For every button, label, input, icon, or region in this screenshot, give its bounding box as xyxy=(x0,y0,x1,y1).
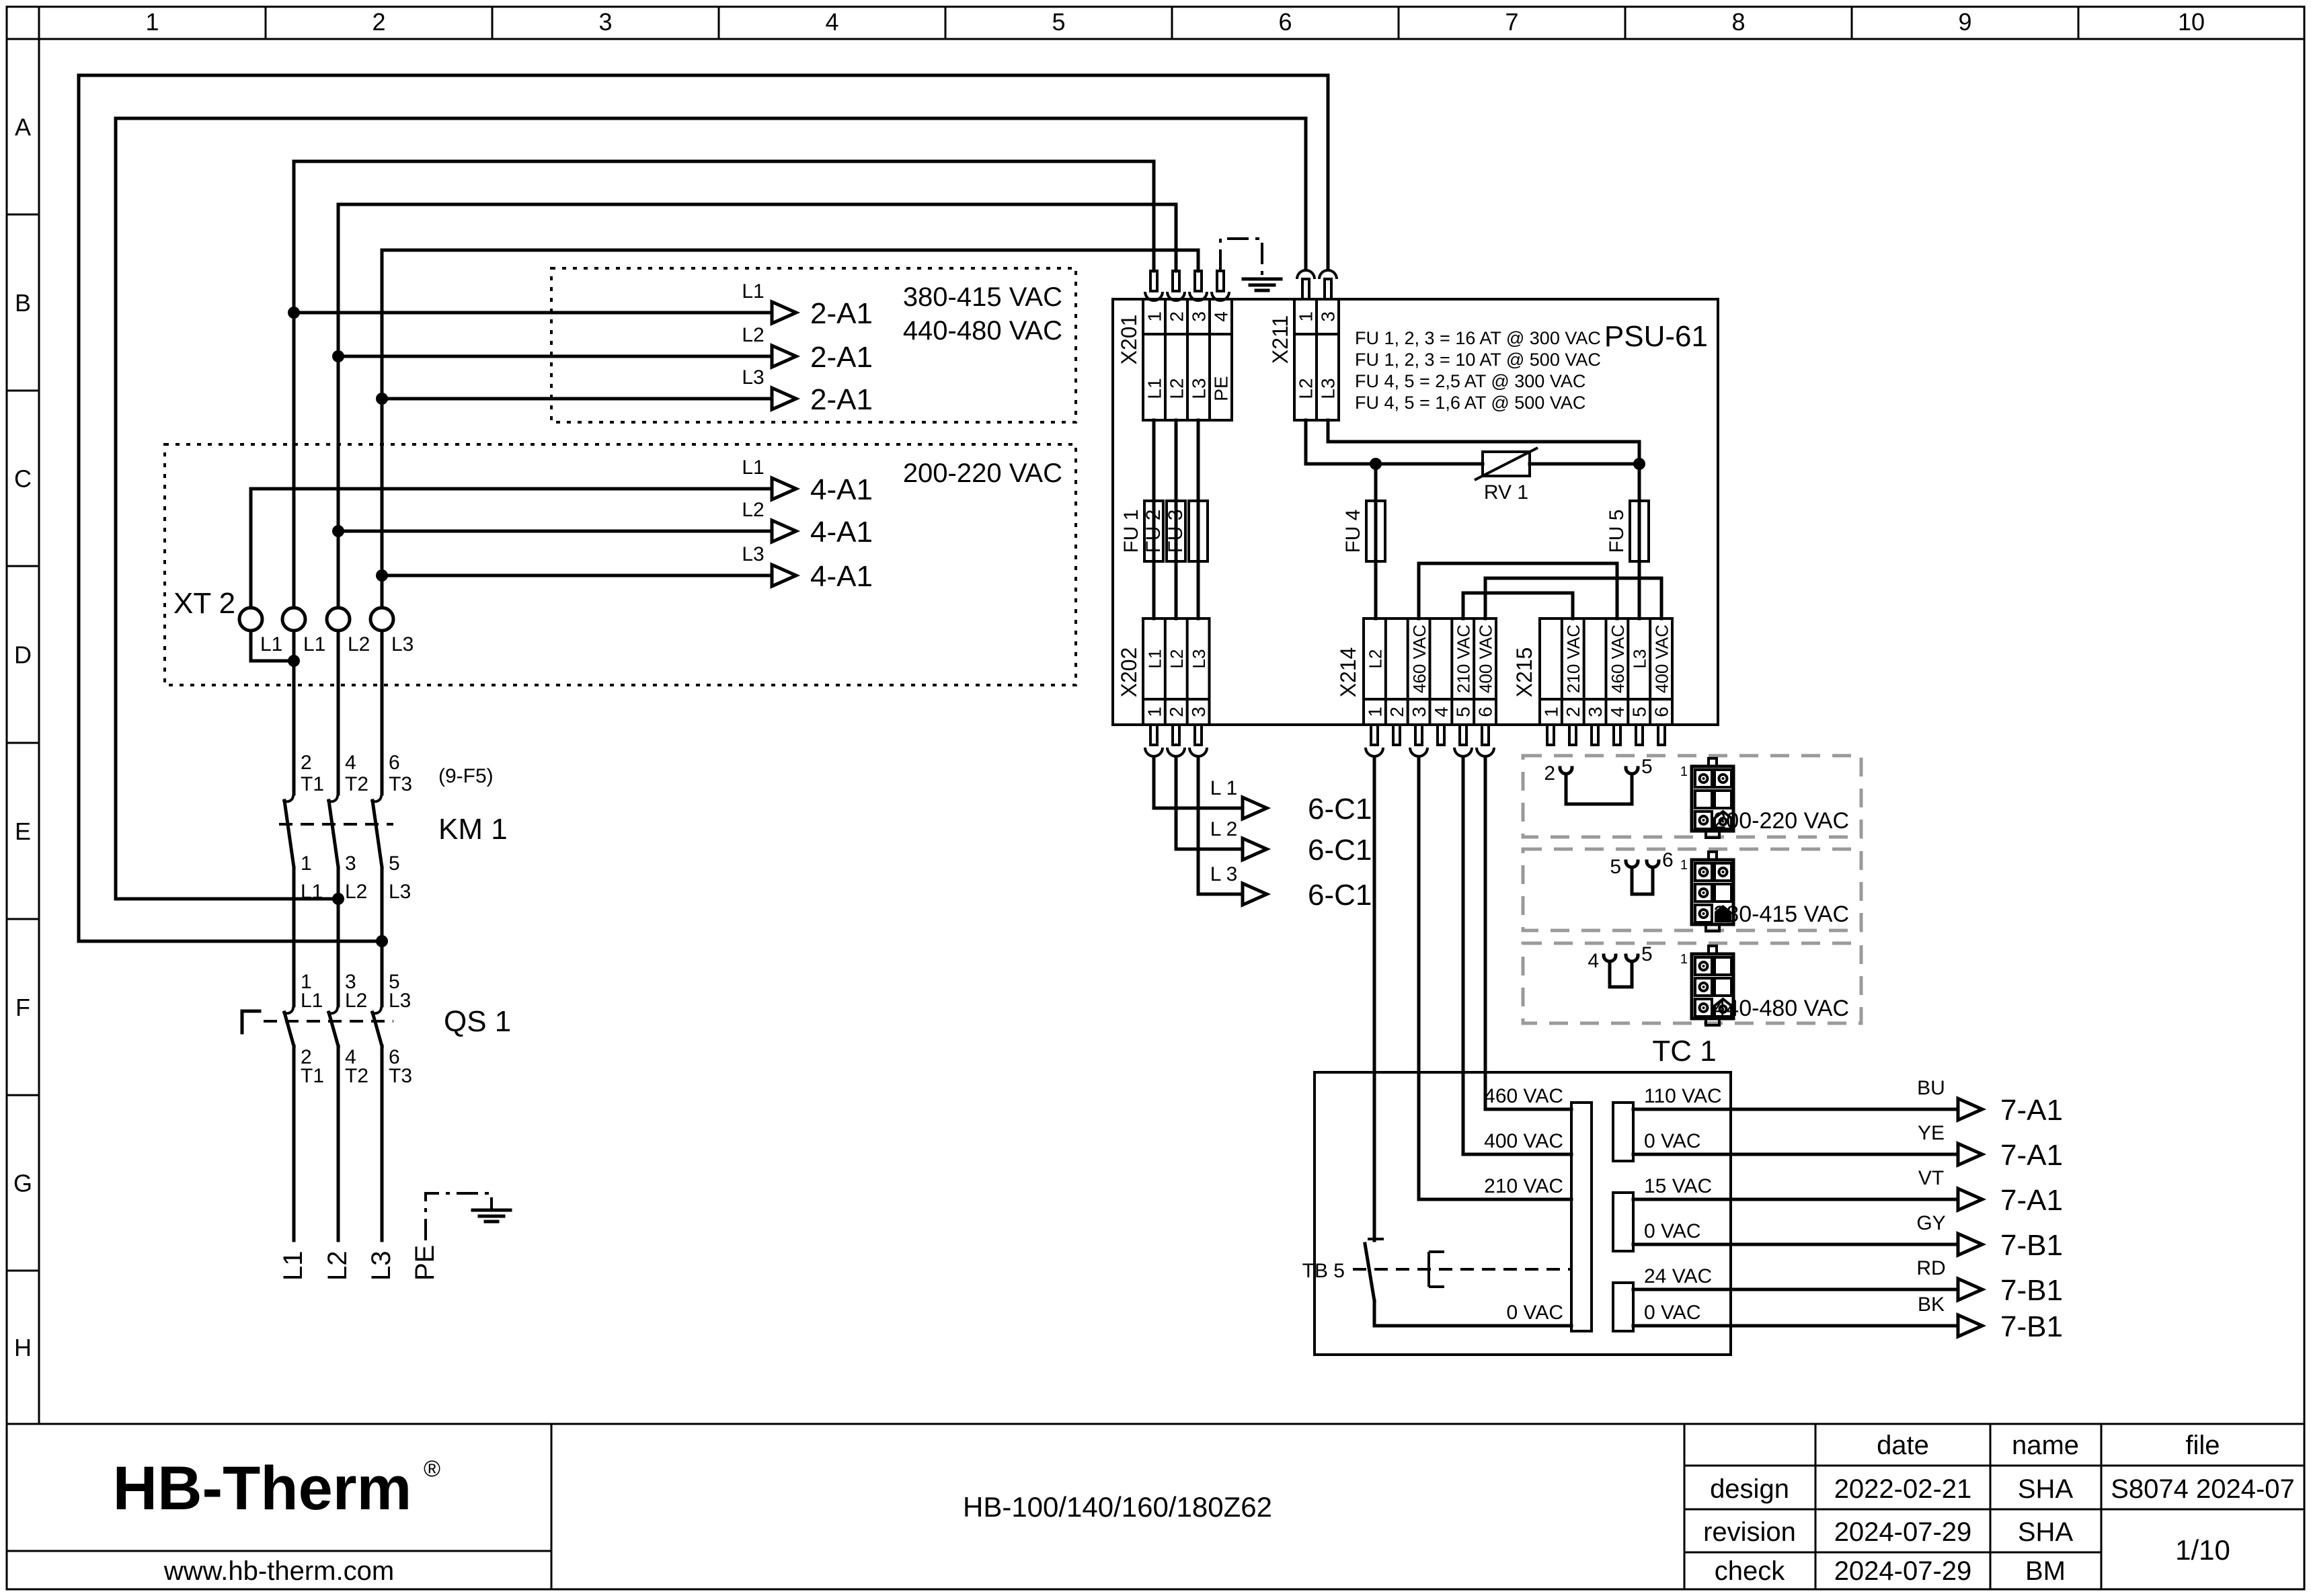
grid-row-label: G xyxy=(13,1170,32,1197)
plug-pin-icon xyxy=(1302,279,1309,299)
signal-arrow-icon xyxy=(1243,883,1267,905)
switch-blade xyxy=(329,801,338,867)
switch-blade xyxy=(329,1012,338,1046)
junction-dot xyxy=(376,935,388,947)
label-title_block-rows-2-name: BM xyxy=(2025,1556,2066,1586)
pin-number: 1 xyxy=(1296,311,1317,322)
label-km1-bot_num-0: 1 xyxy=(301,852,312,875)
plug-pin-icon xyxy=(1460,725,1466,745)
mains-phase-label: L2 xyxy=(323,1251,352,1281)
pin-label: 460 VAC xyxy=(1409,625,1429,693)
label-psu-x214-label: X214 xyxy=(1336,647,1360,698)
plug-pin-icon xyxy=(1569,725,1576,745)
label-feeds_2a1-items-0-target: 2-A1 xyxy=(810,297,873,330)
signal-arrow-icon xyxy=(772,346,796,367)
pin-label: 460 VAC xyxy=(1608,625,1628,693)
junction-dot xyxy=(332,525,344,537)
pin-label: L1 xyxy=(1144,378,1165,399)
grid-col-label: 5 xyxy=(1052,8,1065,36)
label-psu-x201-label: X201 xyxy=(1117,315,1141,365)
label-psu-x215-label: X215 xyxy=(1512,647,1536,698)
pin-number: 4 xyxy=(1431,707,1452,717)
label-xt2-terminals-0: L1 xyxy=(260,633,282,655)
wire xyxy=(1566,774,1632,804)
plug-pin-icon xyxy=(1195,725,1202,745)
pin-number: 5 xyxy=(1453,707,1474,717)
pin-number: 2 xyxy=(1167,311,1187,322)
label-out_7-items-3-color: GY xyxy=(1916,1212,1945,1234)
signal-arrow-icon xyxy=(1958,1234,1982,1255)
label-tc1-secondary-1: 0 VAC xyxy=(1644,1130,1700,1152)
label-out_6c1-items-0-phase: L 1 xyxy=(1210,777,1238,799)
plug-cell xyxy=(1715,791,1731,808)
label-out_7-items-5-target: 7-B1 xyxy=(2000,1310,2063,1343)
signal-arrow-icon xyxy=(1243,797,1267,819)
label-xt2-terminals-1: L1 xyxy=(303,633,325,655)
switch-blade xyxy=(1365,1244,1374,1301)
label-out_7-items-2-color: VT xyxy=(1918,1167,1944,1189)
label-voltage_options-1-jumper_pins-1: 6 xyxy=(1662,849,1674,871)
label-voltage_options-2-jumper_pins-0: 4 xyxy=(1588,950,1599,972)
plug-cell xyxy=(1702,965,1705,967)
wiring-diagram-canvas: 12345678910ABCDEFGH380-415 VAC440-480 VA… xyxy=(0,0,2311,1596)
pin-label: 210 VAC xyxy=(1563,625,1583,693)
plug-socket-icon xyxy=(1189,748,1207,756)
terminal-circle xyxy=(282,608,305,631)
wire xyxy=(1610,961,1632,987)
label-feeds_2a1-items-1-phase: L2 xyxy=(742,324,764,346)
label-feeds_2a1-items-2-target: 2-A1 xyxy=(810,383,873,416)
label-feeds_4a1-items-2-phase: L3 xyxy=(742,543,764,565)
label-voltage_options-1-pin_label: 1 xyxy=(1680,858,1688,873)
pin-label: L2 xyxy=(1365,649,1385,669)
core-bar xyxy=(1571,1103,1592,1331)
signal-arrow-icon xyxy=(772,478,796,500)
grid-row-label: H xyxy=(14,1334,32,1361)
label-tc1-secondary-4: 24 VAC xyxy=(1644,1265,1712,1287)
label-tc1-label: TC 1 xyxy=(1652,1035,1716,1068)
grid-col-label: 3 xyxy=(598,8,612,36)
pin-number: 2 xyxy=(1166,707,1187,717)
connector-plug-icon xyxy=(1709,852,1717,860)
plug-cell xyxy=(1722,1008,1725,1010)
grid-row-label: D xyxy=(14,641,32,669)
label-tc1-secondary-3: 0 VAC xyxy=(1644,1220,1700,1242)
label-out_7-items-3-target: 7-B1 xyxy=(2000,1229,2063,1262)
label-km1-ref: (9-F5) xyxy=(438,765,494,787)
label-km1-top_num-1: 4 xyxy=(345,752,356,774)
wire xyxy=(294,161,1154,608)
label-feeds_4a1-items-0-target: 4-A1 xyxy=(810,473,873,506)
plug-cell xyxy=(1702,912,1705,915)
pin-number: 1 xyxy=(1364,707,1385,717)
grid-col-label: 9 xyxy=(1958,8,1971,36)
label-out_7-items-0-target: 7-A1 xyxy=(2000,1094,2063,1127)
core-bar xyxy=(1613,1193,1633,1251)
signal-arrow-icon xyxy=(772,565,796,586)
wire xyxy=(1419,563,1617,619)
label-voltage_options-0-jumper_pins-1: 5 xyxy=(1641,756,1653,778)
plug-socket-icon xyxy=(1145,748,1163,756)
wire xyxy=(1632,867,1653,894)
label-title_block-rows-0-label: design xyxy=(1710,1474,1789,1504)
signal-arrow-icon xyxy=(1958,1189,1982,1210)
core-bar xyxy=(1613,1283,1633,1331)
label-qs1-bot_lbl-2: T3 xyxy=(389,1065,412,1087)
wire xyxy=(251,489,772,608)
label-xt2-label: XT 2 xyxy=(173,587,235,620)
label-tc1-secondary-5: 0 VAC xyxy=(1644,1302,1700,1324)
connector-plug-icon xyxy=(1709,946,1717,954)
plug-socket-icon xyxy=(1410,748,1427,756)
label-out_7-items-1-color: YE xyxy=(1918,1122,1945,1144)
plug-cell xyxy=(1702,986,1705,988)
junction-dot xyxy=(332,893,344,905)
label-psu-x211-label: X211 xyxy=(1268,315,1292,364)
pin-label: L3 xyxy=(1189,378,1210,399)
signal-arrow-icon xyxy=(772,388,796,409)
plug-cell xyxy=(1722,777,1725,780)
signal-arrow-icon xyxy=(1958,1099,1982,1120)
plug-cell xyxy=(1715,957,1731,975)
label-out_6c1-items-1-target: 6-C1 xyxy=(1308,834,1372,867)
label-psu-notes-0: FU 1, 2, 3 = 16 AT @ 300 VAC xyxy=(1355,328,1601,348)
plug-cell xyxy=(1695,791,1712,808)
model-label: HB-100/140/160/180Z62 xyxy=(963,1491,1272,1523)
plug-socket-icon xyxy=(1366,748,1383,756)
plug-pin-icon xyxy=(1393,725,1400,745)
pin-number: 3 xyxy=(1189,311,1210,322)
label-psu-fuses-4: FU 5 xyxy=(1606,509,1628,553)
mains-phase-label: L1 xyxy=(278,1251,308,1281)
label-title_block-headers-file: file xyxy=(2185,1431,2220,1460)
grid-col-label: 10 xyxy=(2178,8,2205,36)
label-feeds_2a1-items-0-phase: L1 xyxy=(742,280,764,303)
pin-number: 4 xyxy=(1607,707,1628,717)
plug-pin-icon xyxy=(1371,725,1378,745)
plug-cell xyxy=(1722,820,1725,823)
grid-col-label: 1 xyxy=(145,8,159,36)
plug-cell xyxy=(1722,871,1725,873)
plug-socket-icon xyxy=(1477,748,1494,756)
pin-label: L3 xyxy=(1189,649,1209,669)
pin-label: PE xyxy=(1211,376,1232,401)
plug-pin-icon xyxy=(1438,725,1444,745)
wire xyxy=(1485,757,1571,1109)
label-title_block-rows-2-label: check xyxy=(1715,1556,1785,1586)
plug-cell xyxy=(1702,891,1705,894)
label-tc1-secondary-0: 110 VAC xyxy=(1644,1085,1722,1107)
signal-arrow-icon xyxy=(1243,838,1267,860)
pin-number: 3 xyxy=(1585,707,1606,717)
pin-number: 2 xyxy=(1563,707,1583,717)
label-feeds_2a1-items-1-target: 2-A1 xyxy=(810,341,873,374)
label-qs1-top_lbl-2: L3 xyxy=(389,990,411,1012)
label-out_7-items-1-target: 7-A1 xyxy=(2000,1139,2063,1172)
plug-pin-icon xyxy=(1150,271,1157,291)
plug-pin-icon xyxy=(1592,725,1598,745)
label-km1-top_lbl-1: T2 xyxy=(345,773,368,795)
pin-number: 6 xyxy=(1475,707,1496,717)
grid-col-label: 2 xyxy=(372,8,385,36)
label-km1-top_num-2: 6 xyxy=(389,752,400,774)
switch-blade xyxy=(284,801,294,867)
label-title_block-page: 1/10 xyxy=(2175,1534,2230,1566)
grid-row-label: F xyxy=(15,994,30,1021)
wire xyxy=(1463,593,1573,619)
label-out_7-items-2-target: 7-A1 xyxy=(2000,1184,2063,1217)
label-title_block-rows-2-date: 2024-07-29 xyxy=(1834,1556,1972,1586)
label-psu-rv: RV 1 xyxy=(1484,481,1528,504)
terminal-circle xyxy=(327,608,350,631)
label-qs1-label: QS 1 xyxy=(444,1005,511,1038)
grid-col-label: 6 xyxy=(1278,8,1292,36)
label-km1-top_lbl-2: T3 xyxy=(389,773,412,795)
label-title_block-rows-1-name: SHA xyxy=(2018,1517,2074,1547)
connector-plug-icon xyxy=(1706,831,1719,838)
junction-dot xyxy=(288,307,300,319)
core-bar xyxy=(1613,1103,1633,1161)
plug-pin-icon xyxy=(1614,725,1620,745)
pin-number: 5 xyxy=(1629,707,1650,717)
plug-pin-icon xyxy=(1658,725,1665,745)
label-title_block-rows-0-date: 2022-02-21 xyxy=(1834,1474,1972,1504)
connector-plug-icon xyxy=(1709,758,1717,766)
label-title_block-headers-date: date xyxy=(1877,1431,1929,1460)
plug-pin-icon xyxy=(1482,725,1489,745)
schematic-sheet: 12345678910ABCDEFGH380-415 VAC440-480 VA… xyxy=(0,0,2311,1596)
label-km1-top_lbl-0: T1 xyxy=(301,773,324,795)
plug-pin-icon xyxy=(1547,725,1554,745)
connector-plug-icon xyxy=(1706,924,1719,931)
label-out_6c1-items-2-phase: L 3 xyxy=(1210,863,1238,885)
plug-cell xyxy=(1702,777,1705,780)
pin-label: L2 xyxy=(1167,378,1187,399)
label-out_7-items-5-color: BK xyxy=(1918,1293,1945,1316)
label-voltage_options-0-jumper_pins-0: 2 xyxy=(1544,762,1555,785)
pe-conductor xyxy=(1220,239,1262,278)
label-psu-fuses-3: FU 4 xyxy=(1342,509,1364,553)
label-km1-top_num-0: 2 xyxy=(301,752,312,774)
grid-col-label: 8 xyxy=(1731,8,1745,36)
label-tc1-primary-3: 0 VAC xyxy=(1507,1302,1563,1324)
pin-number: 1 xyxy=(1144,707,1165,717)
pin-label: L3 xyxy=(1630,649,1650,669)
label-out_6c1-items-0-target: 6-C1 xyxy=(1308,793,1372,826)
label-tc1-primary-0: 460 VAC xyxy=(1484,1085,1563,1107)
label-feeds_4a1-items-1-phase: L2 xyxy=(742,499,764,521)
label-qs1-top_lbl-0: L1 xyxy=(301,990,323,1012)
pin-label: L2 xyxy=(1167,649,1187,669)
label-out_7-items-4-target: 7-B1 xyxy=(2000,1274,2063,1307)
pin-number: 4 xyxy=(1211,311,1232,322)
label-voltage_options-2-jumper_pins-1: 5 xyxy=(1641,943,1653,965)
switch-blade xyxy=(373,801,382,867)
grid-row-label: A xyxy=(15,114,31,141)
junction-dot xyxy=(376,393,388,405)
grid-col-label: 7 xyxy=(1505,8,1518,36)
grid-row-label: B xyxy=(15,289,31,317)
plug-cell xyxy=(1715,884,1731,902)
plug-cell xyxy=(1702,871,1705,873)
label-title_block-headers-name: name xyxy=(2012,1431,2079,1460)
plug-pin-icon xyxy=(1173,271,1179,291)
hb-therm-logo: HB-Therm xyxy=(113,1454,412,1523)
label-voltage_options-0-pin_label: 1 xyxy=(1680,764,1688,779)
pin-number: 1 xyxy=(1540,707,1561,717)
label-xt2-terminals-3: L3 xyxy=(391,633,414,655)
label-title_block-file_no: S8074 2024-07 xyxy=(2111,1474,2295,1504)
plug-cell xyxy=(1702,819,1705,822)
label-feeds_4a1-items-2-target: 4-A1 xyxy=(810,560,873,593)
plug-cell xyxy=(1702,1006,1705,1009)
label-qs1-bot_lbl-1: T2 xyxy=(345,1065,368,1087)
signal-arrow-icon xyxy=(1958,1144,1982,1165)
label-psu-fuses-0: FU 1 xyxy=(1120,509,1142,553)
label-feeds_4a1-items-1-target: 4-A1 xyxy=(810,516,873,549)
label-title_block-rows-1-date: 2024-07-29 xyxy=(1834,1517,1972,1547)
plug-pin-icon xyxy=(1173,725,1179,745)
plug-pin-icon xyxy=(1217,271,1224,291)
plug-pin-icon xyxy=(1195,271,1202,291)
label-km1-label: KM 1 xyxy=(438,813,508,846)
label-out_6c1-items-2-target: 6-C1 xyxy=(1308,879,1372,912)
plug-pin-icon xyxy=(1150,725,1157,745)
plug-pin-icon xyxy=(1325,279,1331,299)
label-voltage_options-2-pin_label: 1 xyxy=(1680,952,1688,967)
pin-label: L1 xyxy=(1144,649,1165,669)
pin-label: 400 VAC xyxy=(1652,625,1672,693)
label-tc1-secondary-2: 15 VAC xyxy=(1644,1175,1712,1197)
terminal-circle xyxy=(370,608,393,631)
label-psu-x202-label: X202 xyxy=(1117,647,1141,698)
pin-label: L2 xyxy=(1296,378,1317,399)
label-title_block-rows-0-name: SHA xyxy=(2018,1474,2074,1504)
label-qs1-bot_lbl-0: T1 xyxy=(301,1065,324,1087)
pin-number: 6 xyxy=(1651,707,1672,717)
label-xt2-terminals-2: L2 xyxy=(348,633,370,655)
label-psu-label: PSU-61 xyxy=(1604,320,1708,353)
plug-cell xyxy=(1715,978,1731,996)
label-km1-bot_lbl-1: L2 xyxy=(345,881,367,903)
signal-arrow-icon xyxy=(772,520,796,542)
label-psu-fuses-2: FU 3 xyxy=(1165,509,1187,553)
signal-arrow-icon xyxy=(1958,1315,1982,1336)
label-feeds_2a1-range2: 440-480 VAC xyxy=(903,316,1062,346)
label-feeds_2a1-range1: 380-415 VAC xyxy=(903,282,1062,312)
label-tc1-tb: TB 5 xyxy=(1302,1260,1345,1282)
pin-number: 3 xyxy=(1409,707,1429,717)
pin-number: 3 xyxy=(1188,707,1209,717)
mains-phase-label: L3 xyxy=(366,1251,396,1281)
registered-mark: ® xyxy=(424,1456,440,1482)
grid-row-label: C xyxy=(14,465,32,493)
label-qs1-top_lbl-1: L2 xyxy=(345,990,367,1012)
plug-socket-icon xyxy=(1167,748,1185,756)
label-km1-bot_num-2: 5 xyxy=(389,852,400,875)
pin-label: L3 xyxy=(1318,378,1339,399)
grid-col-label: 4 xyxy=(825,8,838,36)
label-title_block-rows-1-label: revision xyxy=(1703,1517,1796,1547)
label-psu-fuses-1: FU 2 xyxy=(1142,509,1165,553)
label-tc1-primary-1: 400 VAC xyxy=(1484,1130,1563,1152)
label-voltage_options-1-jumper_pins-0: 5 xyxy=(1610,856,1621,878)
grid-row-label: E xyxy=(15,817,31,845)
signal-arrow-icon xyxy=(1958,1279,1982,1300)
label-feeds_4a1-range: 200-220 VAC xyxy=(903,458,1062,488)
terminal-circle xyxy=(239,608,262,631)
plug-pin-icon xyxy=(1636,725,1643,745)
website-label: www.hb-therm.com xyxy=(163,1556,394,1586)
signal-arrow-icon xyxy=(772,302,796,323)
junction-dot xyxy=(376,569,388,582)
pin-label: 400 VAC xyxy=(1476,625,1496,693)
junction-dot xyxy=(332,350,344,362)
pin-number: 1 xyxy=(1144,311,1165,322)
pin-label: 210 VAC xyxy=(1454,625,1474,693)
label-km1-bot_lbl-2: L3 xyxy=(389,881,411,903)
pin-number: 2 xyxy=(1386,707,1407,717)
plug-pin-icon xyxy=(1415,725,1422,745)
label-tc1-primary-2: 210 VAC xyxy=(1484,1175,1563,1197)
plug-socket-icon xyxy=(1454,748,1472,756)
label-psu-notes-2: FU 4, 5 = 2,5 AT @ 300 VAC xyxy=(1355,371,1585,391)
switch-blade xyxy=(373,1012,382,1046)
mains-pe-label: PE xyxy=(410,1245,440,1281)
label-feeds_2a1-items-2-phase: L3 xyxy=(742,366,764,389)
label-out_7-items-4-color: RD xyxy=(1916,1257,1945,1279)
label-feeds_4a1-items-0-phase: L1 xyxy=(742,456,764,479)
pin-number: 3 xyxy=(1318,311,1339,322)
switch-blade xyxy=(284,1012,294,1046)
label-psu-notes-3: FU 4, 5 = 1,6 AT @ 500 VAC xyxy=(1355,393,1585,413)
label-psu-notes-1: FU 1, 2, 3 = 10 AT @ 500 VAC xyxy=(1355,350,1601,370)
label-km1-bot_num-1: 3 xyxy=(345,852,356,875)
label-out_7-items-0-color: BU xyxy=(1917,1077,1945,1099)
label-out_6c1-items-1-phase: L 2 xyxy=(1210,818,1238,840)
